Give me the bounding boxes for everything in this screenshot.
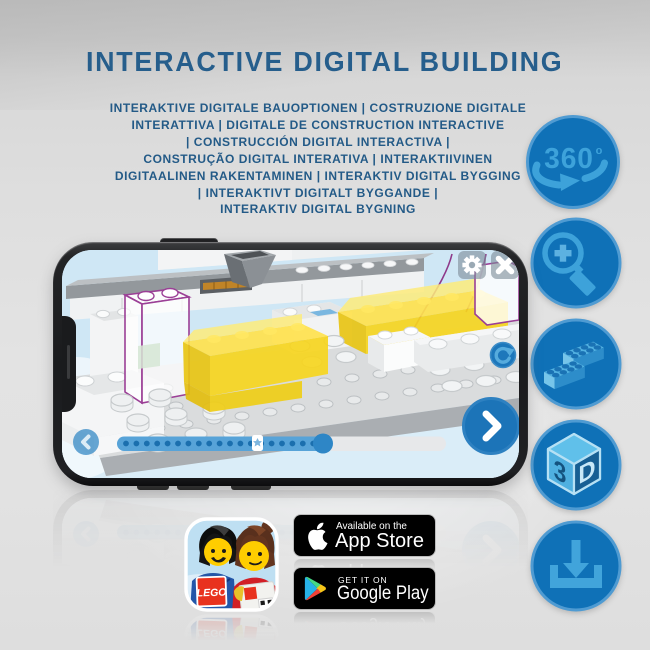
- svg-text:360: 360: [544, 143, 594, 175]
- svg-text:LEGO: LEGO: [196, 587, 226, 600]
- svg-text:o: o: [596, 145, 603, 157]
